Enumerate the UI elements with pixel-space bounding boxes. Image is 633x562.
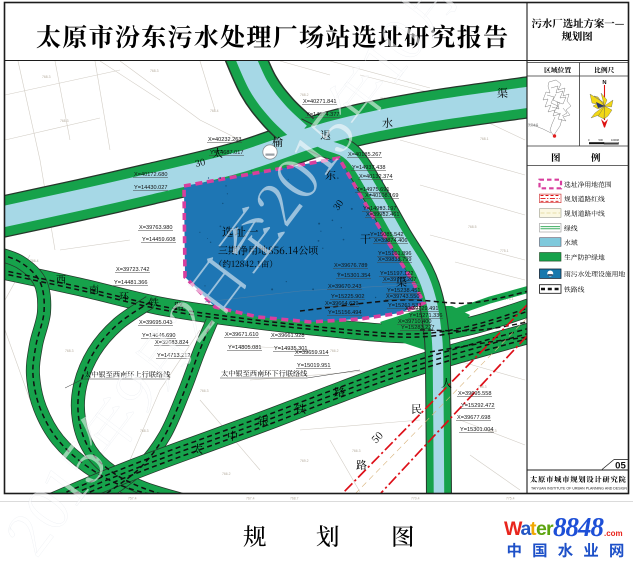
svg-text:Y=14459.608: Y=14459.608 [142,237,175,243]
svg-text:768.7: 768.7 [290,497,299,501]
svg-text:768.3: 768.3 [478,385,487,389]
svg-text:768.4: 768.4 [210,109,219,113]
svg-text:768.3: 768.3 [140,429,149,433]
svg-text:X=39676.789: X=39676.789 [334,263,367,269]
svg-text:775.1: 775.1 [500,249,509,253]
svg-text:Y=15292.472: Y=15292.472 [461,403,494,409]
svg-text:767.4: 767.4 [246,497,255,501]
svg-text:X=40271.841: X=40271.841 [303,99,336,105]
svg-text:768.2: 768.2 [300,93,309,97]
svg-text:768.1: 768.1 [480,137,489,141]
svg-text:X=39833.799: X=39833.799 [378,257,411,263]
svg-text:X=40108.169: X=40108.169 [365,193,398,199]
svg-text:X=39982.461: X=39982.461 [366,212,399,218]
svg-text:768.3: 768.3 [150,69,159,73]
svg-text:775.4: 775.4 [506,497,515,501]
svg-text:X=39661.928: X=39661.928 [271,333,304,339]
svg-text:X=40132.374: X=40132.374 [359,174,392,180]
svg-text:X=39695.043: X=39695.043 [139,320,172,326]
svg-text:768.3: 768.3 [60,119,69,123]
svg-text:766.3: 766.3 [352,449,361,453]
svg-text:Y=14937.438: Y=14937.438 [352,165,385,171]
svg-text:Y=14481.366: Y=14481.366 [114,280,147,286]
svg-text:X=39671.610: X=39671.610 [225,332,258,338]
svg-text:X=39670.243: X=39670.243 [328,284,361,290]
svg-text:8848: 8848 [553,512,605,542]
svg-text:X=39659.914: X=39659.914 [295,350,328,356]
svg-text:.com: .com [604,529,623,538]
svg-text:TAIYUAN INSTITUTE OF URBAN PLA: TAIYUAN INSTITUTE OF URBAN PLANNING AND … [531,487,627,491]
svg-text:Y=15301.004: Y=15301.004 [460,427,493,433]
svg-text:X=39874.406: X=39874.406 [374,238,407,244]
svg-text:X=39723.742: X=39723.742 [116,267,149,273]
svg-text:768.5: 768.5 [468,225,477,229]
svg-text:X=39729.491: X=39729.491 [405,306,438,312]
svg-text:X=39763.980: X=39763.980 [139,225,172,231]
svg-text:Y=14805.081: Y=14805.081 [228,345,261,351]
svg-text:X=40185.267: X=40185.267 [348,152,381,158]
svg-text:Y=15019.951: Y=15019.951 [297,363,330,369]
svg-text:500: 500 [599,138,604,142]
svg-text:757.4: 757.4 [128,497,137,501]
svg-text:1000M: 1000M [611,138,619,142]
svg-text:X=40232.263: X=40232.263 [208,137,241,143]
svg-text:766.2: 766.2 [330,349,339,353]
svg-text:Y=15283.227: Y=15283.227 [401,325,434,331]
svg-text:X=40172.680: X=40172.680 [134,172,167,178]
svg-text:X=39677.698: X=39677.698 [457,415,490,421]
svg-text:Y=15225.902: Y=15225.902 [331,294,364,300]
svg-text:770.4: 770.4 [411,497,420,501]
svg-text:768.3: 768.3 [65,349,74,353]
svg-text:766.2: 766.2 [222,472,231,476]
svg-text:X=39695.558: X=39695.558 [458,391,491,397]
svg-text:769.2: 769.2 [300,459,309,463]
svg-text:766.3: 766.3 [200,389,209,393]
svg-text:X=39743.550: X=39743.550 [386,294,419,300]
svg-text:Y=14430.027: Y=14430.027 [134,185,167,191]
svg-text:洪洞水系: 洪洞水系 [528,123,539,127]
svg-text:768.3: 768.3 [42,75,51,79]
svg-text:X=39664.629: X=39664.629 [325,301,358,307]
svg-text:Y=15156.494: Y=15156.494 [328,310,361,316]
svg-text:Y=15301.354: Y=15301.354 [337,273,370,279]
